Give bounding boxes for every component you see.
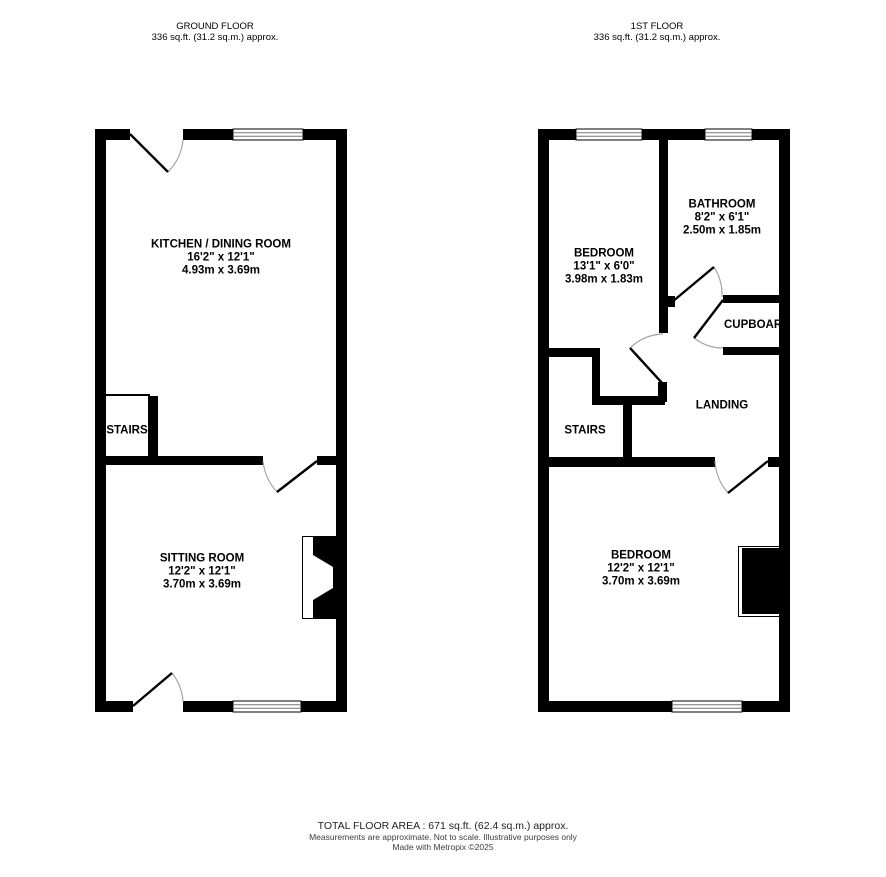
ff-bottom-window	[672, 701, 742, 712]
gf-divider-stub	[317, 456, 347, 465]
front-bedroom-imperial: 13'1" x 6'0"	[565, 261, 643, 274]
kitchen-imperial: 16'2" x 12'1"	[151, 252, 291, 265]
ff-front-bedroom-door	[630, 334, 663, 384]
gf-bottom-window	[233, 701, 301, 712]
ff-top-wall-seg1	[538, 129, 576, 140]
room-label-sitting: SITTING ROOM 12'2" x 12'1" 3.70m x 3.69m	[160, 553, 244, 592]
first-floor-area: 336 sq.ft. (31.2 sq.m.) approx.	[594, 32, 721, 43]
gf-left-wall	[95, 129, 106, 712]
gf-front-door	[130, 134, 183, 172]
front-bedroom-metric: 3.98m x 1.83m	[565, 274, 643, 287]
plan-footer: TOTAL FLOOR AREA : 671 sq.ft. (62.4 sq.m…	[309, 820, 577, 852]
ff-bottom-wall-seg2	[742, 701, 790, 712]
bathroom-name: BATHROOM	[683, 199, 761, 212]
ff-top-wall-seg2	[642, 129, 705, 140]
front-bedroom-name: BEDROOM	[565, 248, 643, 261]
ff-chimney-breast	[739, 547, 780, 617]
gf-divider-wall	[95, 456, 263, 465]
ff-cupboard-bottom-wall	[723, 347, 779, 355]
room-label-cupboard: CUPBOARD	[724, 319, 779, 332]
ff-bottom-wall-seg1	[538, 701, 672, 712]
room-label-ff-stairs: STAIRS	[564, 425, 605, 438]
room-label-gf-stairs: STAIRS	[106, 425, 147, 438]
ff-bed-bath-divider	[659, 140, 668, 333]
gf-sitting-room-door	[263, 461, 317, 492]
ff-landing-wall-seg2	[768, 457, 779, 467]
floorplan-page: GROUND FLOOR 336 sq.ft. (31.2 sq.m.) app…	[0, 0, 886, 877]
ground-floor-area: 336 sq.ft. (31.2 sq.m.) approx.	[152, 32, 279, 43]
floorplan-drawing	[0, 0, 886, 877]
ff-top-wall-seg3	[752, 129, 790, 140]
footer-disclaimer: Measurements are approximate. Not to sca…	[309, 832, 577, 842]
kitchen-metric: 4.93m x 3.69m	[151, 265, 291, 278]
ff-right-wall	[779, 129, 790, 712]
ff-cupboard-top-wall	[723, 295, 779, 303]
back-bedroom-name: BEDROOM	[602, 550, 680, 563]
ff-left-wall	[538, 129, 549, 712]
ground-floor-doors	[130, 134, 317, 706]
ff-landing-wall-seg1	[549, 457, 715, 467]
gf-stairs-line	[106, 394, 150, 396]
ground-floor-walls	[95, 129, 347, 712]
ground-floor-windows	[233, 129, 303, 712]
total-floor-area: TOTAL FLOOR AREA : 671 sq.ft. (62.4 sq.m…	[309, 820, 577, 832]
gf-bottom-wall-seg2	[183, 701, 233, 712]
gf-bottom-wall-seg3	[301, 701, 347, 712]
gf-top-wall-seg2	[183, 129, 233, 140]
gf-bottom-wall-seg1	[95, 701, 133, 712]
room-label-kitchen: KITCHEN / DINING ROOM 16'2" x 12'1" 4.93…	[151, 239, 291, 278]
room-label-front-bedroom: BEDROOM 13'1" x 6'0" 3.98m x 1.83m	[565, 248, 643, 287]
sitting-imperial: 12'2" x 12'1"	[160, 566, 244, 579]
ff-stairs-name: STAIRS	[564, 425, 605, 438]
gf-fireplace	[303, 536, 337, 619]
first-floor-title: 1ST FLOOR	[594, 21, 721, 32]
gf-right-wall	[336, 129, 347, 712]
ff-stairs-wall-b	[592, 348, 600, 397]
ff-bedroom-door-stub	[658, 382, 667, 402]
ff-top-window-1	[576, 129, 642, 140]
ground-floor-title: GROUND FLOOR	[152, 21, 279, 32]
room-label-bathroom: BATHROOM 8'2" x 6'1" 2.50m x 1.85m	[683, 199, 761, 238]
ff-stairs-wall-d	[623, 396, 632, 461]
bathroom-metric: 2.50m x 1.85m	[683, 225, 761, 238]
ff-cupboard-door	[694, 300, 723, 348]
sitting-metric: 3.70m x 3.69m	[160, 579, 244, 592]
room-label-back-bedroom: BEDROOM 12'2" x 12'1" 3.70m x 3.69m	[602, 550, 680, 589]
sitting-name: SITTING ROOM	[160, 553, 244, 566]
cupboard-name: CUPBOARD	[724, 319, 779, 332]
room-label-landing: LANDING	[696, 400, 748, 413]
gf-top-window	[233, 129, 303, 140]
gf-stairs-wall	[148, 396, 158, 458]
ff-bathroom-door	[672, 267, 722, 302]
back-bedroom-metric: 3.70m x 3.69m	[602, 576, 680, 589]
ff-back-bedroom-door	[715, 461, 768, 493]
ff-top-window-2	[705, 129, 752, 140]
bathroom-imperial: 8'2" x 6'1"	[683, 212, 761, 225]
gf-top-wall-seg3	[303, 129, 347, 140]
kitchen-name: KITCHEN / DINING ROOM	[151, 239, 291, 252]
first-floor-header: 1ST FLOOR 336 sq.ft. (31.2 sq.m.) approx…	[594, 21, 721, 43]
ground-floor-header: GROUND FLOOR 336 sq.ft. (31.2 sq.m.) app…	[152, 21, 279, 43]
gf-top-wall-seg1	[95, 129, 130, 140]
footer-credit: Made with Metropix ©2025	[309, 842, 577, 852]
gf-back-door	[133, 673, 183, 706]
gf-stairs-name: STAIRS	[106, 425, 147, 438]
ground-floor-plan	[95, 129, 347, 712]
landing-name: LANDING	[696, 400, 748, 413]
back-bedroom-imperial: 12'2" x 12'1"	[602, 563, 680, 576]
